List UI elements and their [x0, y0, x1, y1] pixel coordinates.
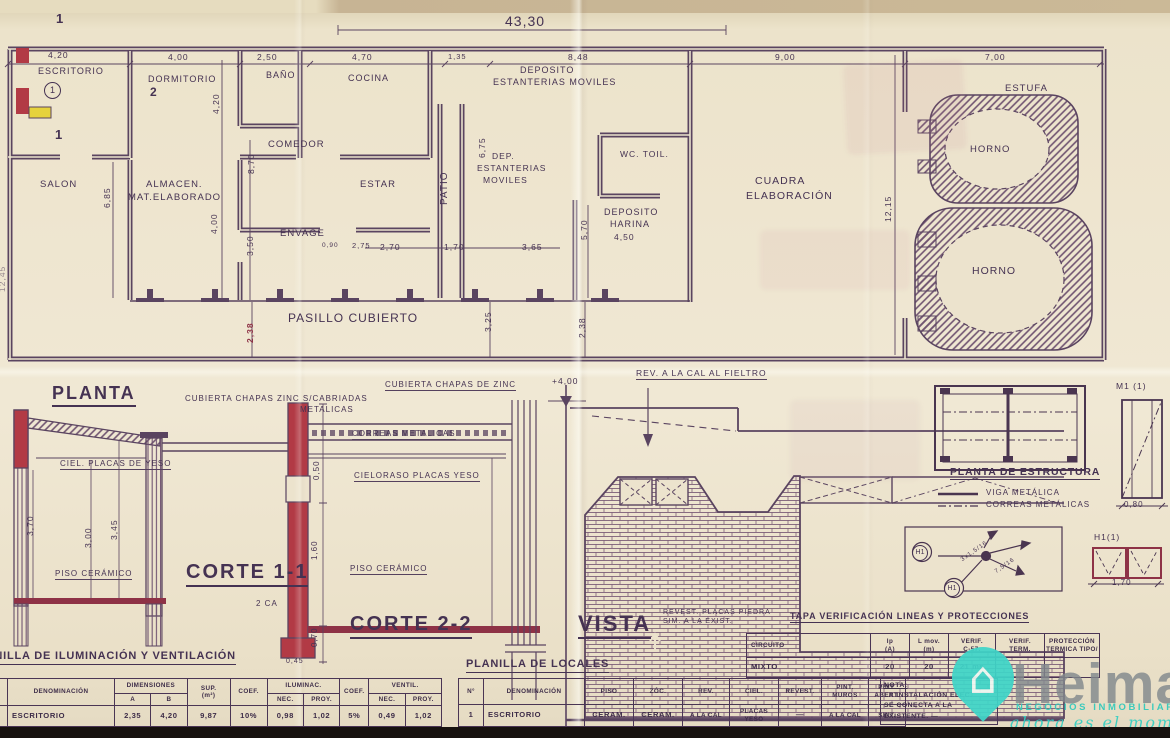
- room-patio: PATIO: [440, 171, 451, 205]
- dim-400v: 4,00: [210, 213, 219, 234]
- dim-cocina: 4,70: [352, 53, 373, 62]
- level-mark-400: +4,00: [552, 377, 579, 386]
- room-dormitorio: DORMITORIO: [148, 75, 216, 84]
- title-tapa-verificacion: TAPA VERIFICACIÓN LINEAS Y PROTECCIONES: [790, 612, 1029, 623]
- legend-correas-metalicas: CORREAS METÁLICAS: [986, 501, 1090, 509]
- legend-viga-metalica: VIGA METÁLICA: [986, 489, 1060, 497]
- room-cuadra-line2: ELABORACIÓN: [746, 191, 833, 202]
- dim-080: 0,80: [1124, 501, 1144, 509]
- planilla-locales-table: N° DENOMINACIÓN PISO ZÓC. REV. CIEL. REV…: [458, 678, 906, 727]
- dim-160: 1,60: [311, 540, 319, 560]
- room-banio: BAÑO: [266, 71, 296, 80]
- note-cieloraso: CIELORASO PLACAS YESO: [354, 472, 480, 482]
- title-vista: VISTA: [578, 612, 651, 639]
- dim-harina: 4,50: [614, 233, 635, 242]
- dim-350: 3,50: [246, 235, 255, 256]
- tapa-col-circuito: CIRCUITO: [747, 634, 871, 658]
- room-almacen-line1: ALMACEN.: [146, 180, 203, 190]
- room-cuadra-line1: CUADRA: [755, 176, 805, 187]
- title-planta: PLANTA: [52, 384, 136, 407]
- locales-row-escritorio: 1 ESCRITORIO CERAM. CERAM. A LA CAL PLAC…: [459, 705, 906, 727]
- dim-total-width: 43,30: [505, 14, 545, 29]
- cut-marker-2: 2: [150, 86, 158, 99]
- dim-275: 2,75: [352, 242, 371, 250]
- dim-cuadra: 9,00: [775, 53, 796, 62]
- dim-escritorio: 4,20: [48, 51, 69, 60]
- ilum-col-nec2: NEC.: [369, 694, 405, 706]
- room-wc-toil: WC. TOIL.: [620, 150, 669, 159]
- room-comedor: COMEDOR: [268, 140, 325, 150]
- locales-col-pint-muros: PINT. MUROS: [822, 679, 869, 705]
- dim-238-left: 2,38: [246, 322, 255, 343]
- room-deposito-line1: DEPOSITO: [520, 66, 574, 75]
- room-cocina: COCINA: [348, 74, 389, 83]
- dim-238-right: 2,38: [578, 317, 587, 338]
- dim-870: 8,70: [247, 153, 256, 174]
- heima-tagline: NEGOCIOS INMOBILIARIO: [1016, 702, 1170, 713]
- dim-banio: 2,50: [257, 53, 278, 62]
- title-corte-1-1: CORTE 1-1: [186, 562, 308, 587]
- locales-col-ciel: CIEL.: [730, 679, 779, 705]
- room-deposito-line2: ESTANTERIAS MOVILES: [493, 78, 616, 87]
- dim-1245-edge: 12,45: [0, 266, 7, 292]
- note-rev-cal-fieltro: REV. A LA CAL AL FIELTRO: [636, 369, 767, 380]
- dim-270: 2,70: [380, 243, 401, 252]
- note-cubierta-zinc: CUBIERTA CHAPAS DE ZINC: [385, 381, 516, 391]
- dim-dormitorio: 4,00: [168, 53, 189, 62]
- room-pasillo-cubierto: PASILLO CUBIERTO: [288, 312, 418, 325]
- room-estufa: ESTUFA: [1005, 84, 1048, 94]
- room-estar: ESTAR: [360, 180, 396, 190]
- dim-050: 0,50: [313, 460, 321, 480]
- locales-col-rev: REV.: [683, 679, 730, 705]
- wire-label-a: 3x1,5/16: [960, 540, 989, 563]
- title-planilla-iluminacion: PLANILLA DE ILUMINACIÓN Y VENTILACIÓN: [0, 651, 236, 665]
- ilum-col-denominacion: DENOMINACIÓN: [8, 679, 115, 706]
- cut-marker-1a: 1: [56, 12, 64, 26]
- dim-deposito: 8,48: [568, 53, 589, 62]
- badge-h1-a: H1: [912, 545, 928, 561]
- room-horno-upper: HORNO: [970, 145, 1010, 155]
- room-dep-line1: DEP.: [492, 152, 515, 161]
- tapa-col-ip: Ip(A): [871, 634, 910, 658]
- note-2ca: 2 CA: [256, 600, 278, 608]
- planilla-iluminacion-table: DENOMINACIÓN DIMENSIONES SUP.(m²) COEF. …: [0, 678, 442, 727]
- badge-h1-b: H1: [944, 581, 960, 597]
- ilum-col-coef: COEF.: [230, 679, 267, 706]
- wire-label-b: 7,5/16: [994, 557, 1016, 575]
- room-harina-line2: HARINA: [610, 220, 650, 229]
- dim-370: 3,70: [26, 515, 35, 536]
- room-dep-line2: ESTANTERIAS: [477, 164, 546, 173]
- room-salon: SALON: [40, 180, 77, 190]
- heima-logo: ⌂ Heima NEGOCIOS INMOBILIARIO ahora es e…: [940, 645, 1170, 738]
- dim-170: 1,70: [444, 243, 465, 252]
- note-piso-ceramico-2: PISO CERÁMICO: [350, 565, 427, 575]
- dim-675: 6,75: [478, 137, 487, 158]
- dim-300: 3,00: [84, 527, 93, 548]
- note-revest-piedra-1: REVEST. PLACAS PIEDRA: [663, 609, 771, 616]
- room-envage: ENVAGE: [280, 229, 325, 239]
- ilum-col-b: B: [151, 694, 187, 706]
- note-revest-piedra-2: SIM. A LA EXIST.: [663, 618, 733, 625]
- title-planilla-locales: PLANILLA DE LOCALES: [466, 659, 609, 673]
- ilum-col-a: A: [115, 694, 151, 706]
- dim-070: 0,70: [311, 627, 319, 647]
- ilum-col-ventil: VENTIL.: [369, 679, 442, 694]
- room-escritorio: ESCRITORIO: [38, 67, 104, 76]
- dim-365: 3,65: [522, 243, 543, 252]
- ilum-col-sup: SUP.(m²): [187, 679, 230, 706]
- ilum-col-dimensiones: DIMENSIONES: [115, 679, 188, 694]
- dim-estufa: 7,00: [985, 53, 1006, 62]
- annotation-layer: 43,304,204,002,504,701,358,489,007,00ESC…: [0, 0, 1170, 738]
- ilum-col-proy2: PROY.: [405, 694, 441, 706]
- ilum-col-nec: NEC.: [267, 694, 303, 706]
- title-planta-estructura: PLANTA DE ESTRUCTURA: [950, 467, 1100, 480]
- dim-170-detail: 1,70: [1112, 579, 1132, 587]
- dim-345: 3,45: [110, 519, 119, 540]
- locales-col-piso: PISO: [585, 679, 634, 705]
- label-h1-1: H1(1): [1094, 533, 1120, 542]
- label-m1-1: M1 (1): [1116, 382, 1147, 391]
- room-horno-lower: HORNO: [972, 266, 1016, 277]
- note-cubierta-cabriadas-2: METALICAS: [300, 406, 354, 414]
- house-icon: ⌂: [952, 649, 1014, 711]
- title-corte-2-2: CORTE 2-2: [350, 614, 472, 639]
- dim-420v: 4,20: [212, 93, 221, 114]
- ilum-col-proy: PROY.: [303, 694, 339, 706]
- dim-325: 3,25: [484, 311, 493, 332]
- note-cubierta-cabriadas-1: CUBIERTA CHAPAS ZINC S/CABRIADAS: [185, 395, 368, 403]
- note-piso-ceramico-1: PISO CERÁMICO: [55, 570, 132, 580]
- cut-marker-1b: 1: [55, 128, 63, 142]
- dim-045: 0,45: [286, 658, 304, 665]
- locales-col-revest: REVEST.: [779, 679, 822, 705]
- note-correas-metalicas: CORREAS METALICAS: [352, 430, 456, 440]
- ilum-col-coef2: COEF.: [340, 679, 369, 706]
- ilum-col-iluminac: ILUMINAC.: [267, 679, 340, 694]
- dim-135: 1,35: [448, 53, 467, 61]
- dim-570: 5,70: [580, 219, 589, 240]
- room-almacen-line2: MAT.ELABORADO: [128, 193, 221, 203]
- room-harina-line1: DEPOSITO: [604, 208, 658, 217]
- scan-bottom-bar: [0, 727, 1170, 738]
- nota-title: NOTA:: [884, 682, 908, 689]
- locales-col-zoc: ZÓC.: [634, 679, 683, 705]
- locales-col-denominacion: DENOMINACIÓN: [484, 679, 585, 705]
- room-number-1: 1: [44, 82, 61, 99]
- dim-090: 0,90: [322, 243, 339, 250]
- dim-685: 6,85: [103, 187, 112, 208]
- note-ciel-placas-yeso: CIEL. PLACAS DE YESO: [60, 460, 171, 470]
- ilum-row-escritorio: ESCRITORIO 2,35 4,20 9,87 10% 0,98 1,02 …: [0, 706, 442, 727]
- dim-1215: 12,15: [884, 196, 893, 222]
- room-dep-line3: MOVILES: [483, 176, 528, 185]
- blueprint-scan: 43,304,204,002,504,701,358,489,007,00ESC…: [0, 0, 1170, 738]
- locales-col-n: N°: [459, 679, 484, 705]
